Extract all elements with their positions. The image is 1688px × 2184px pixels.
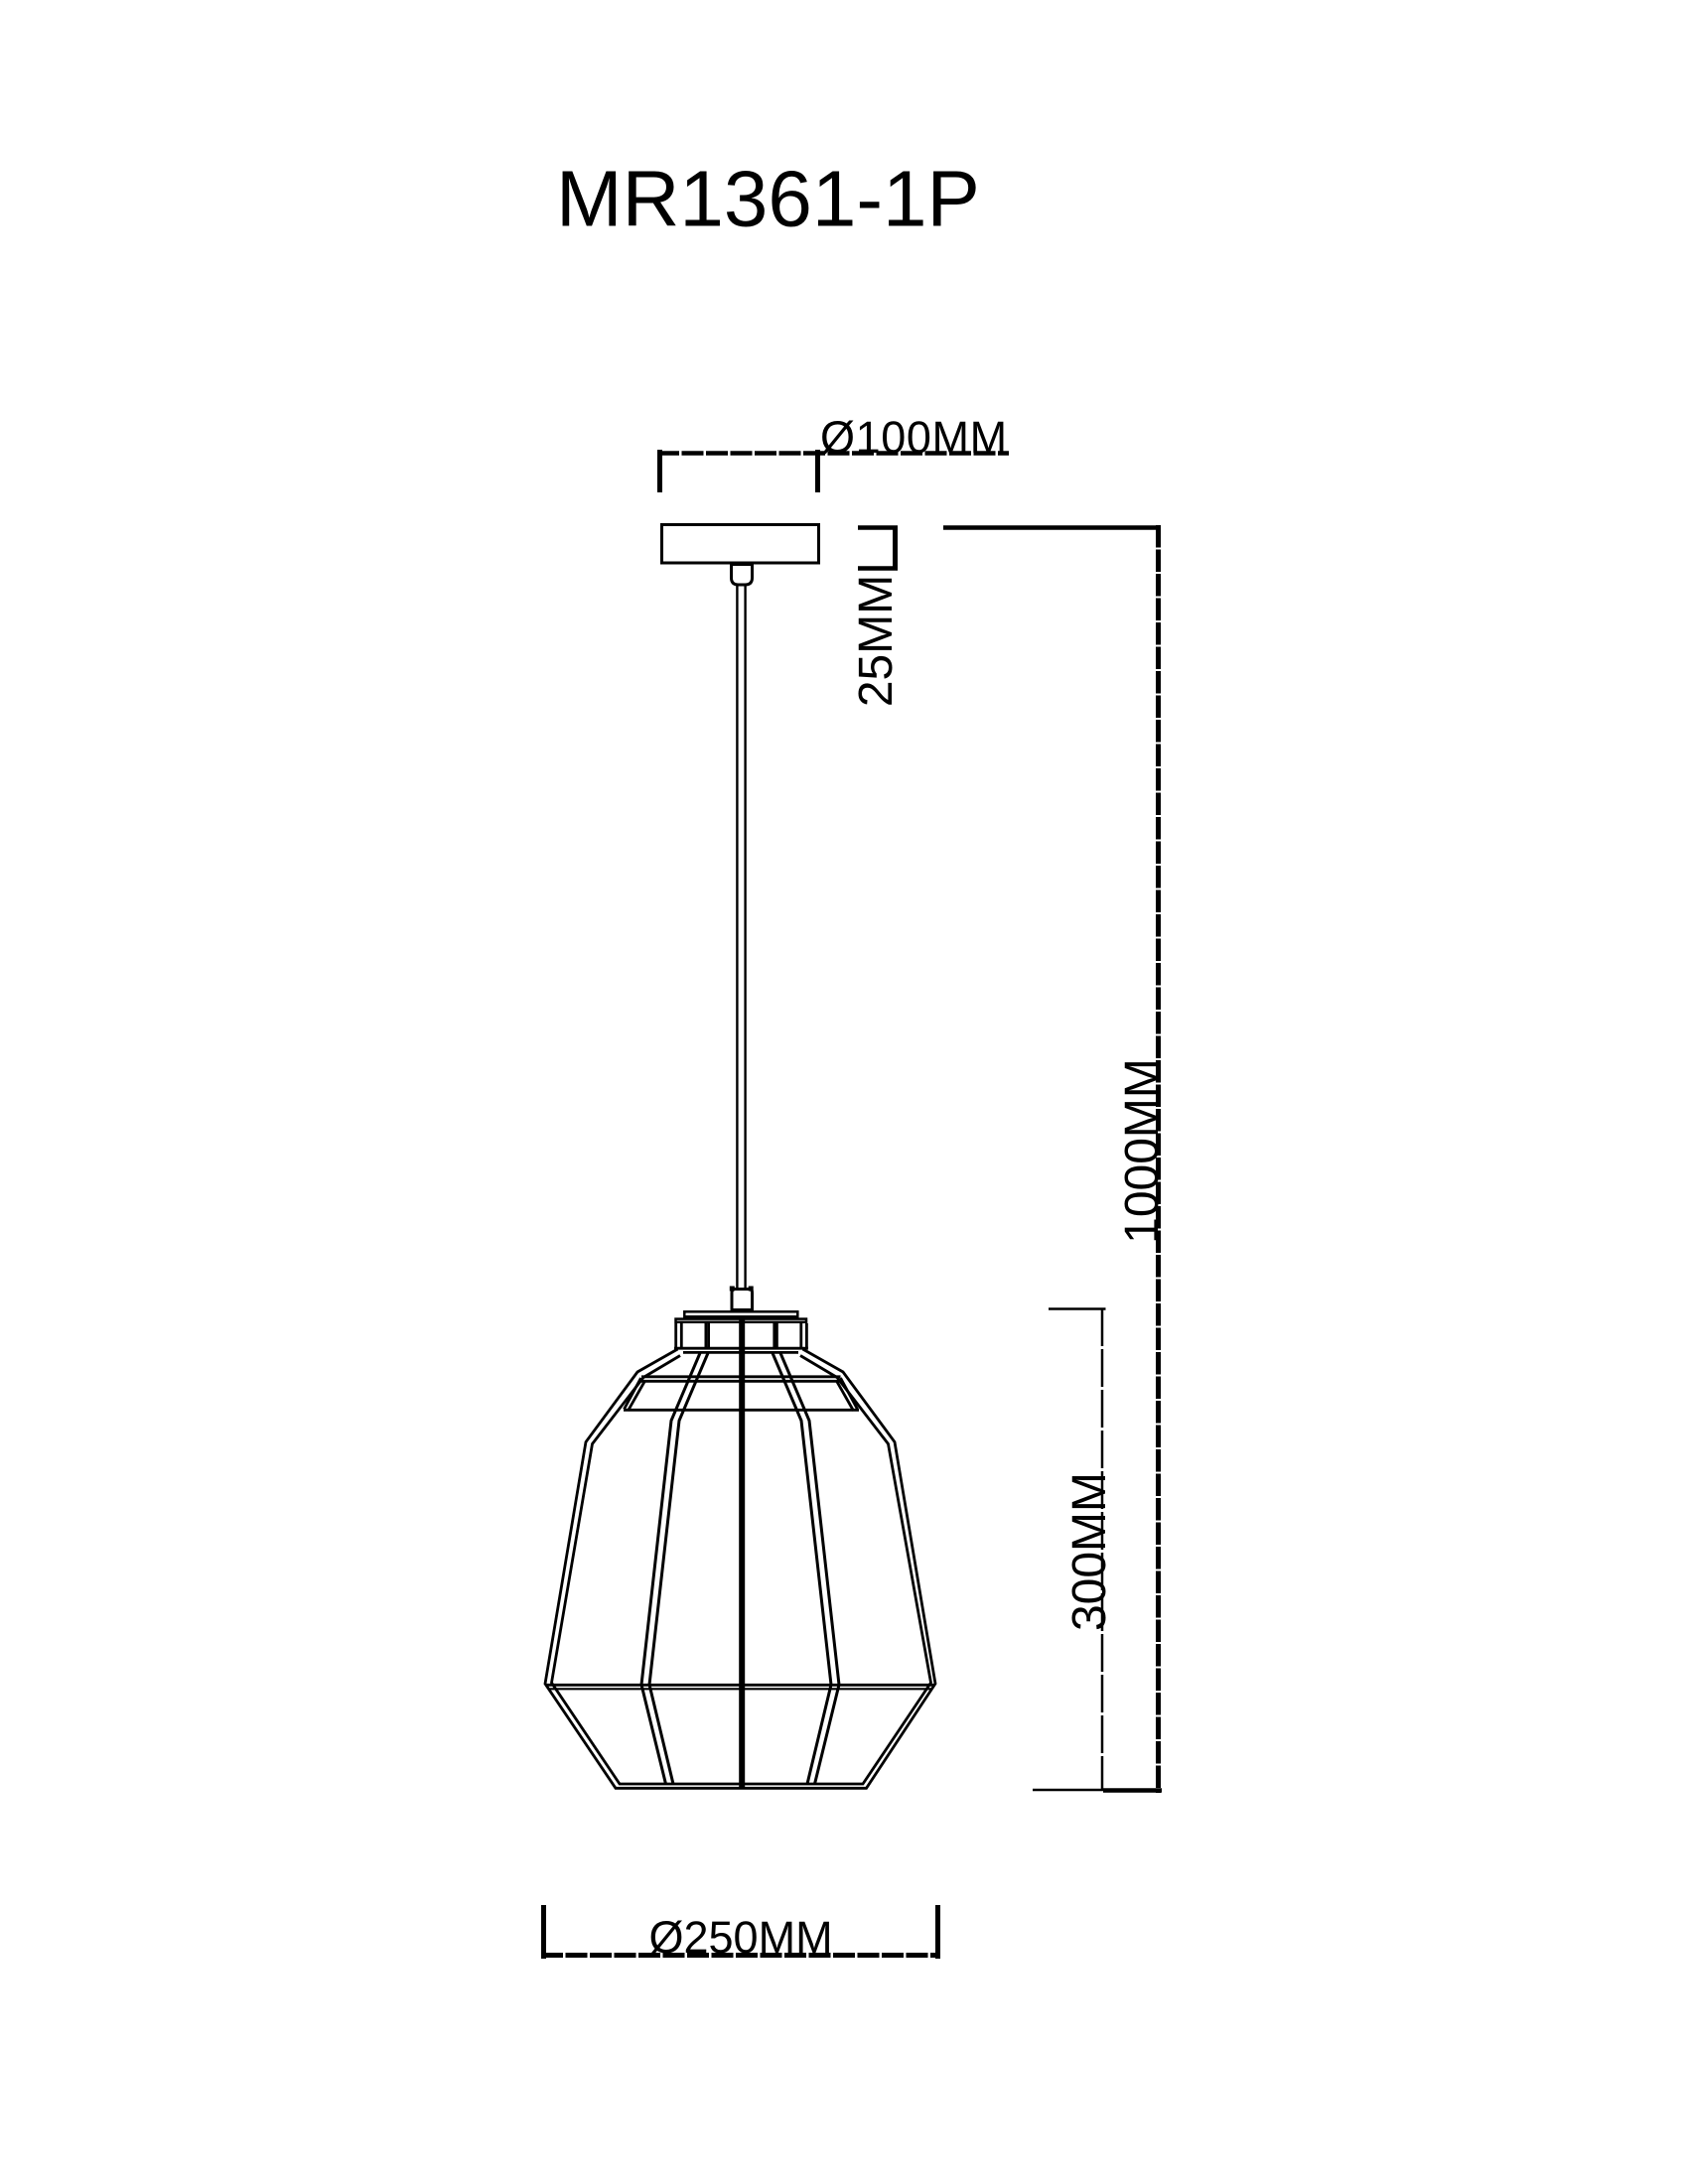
svg-text:Ø250MM: Ø250MM bbox=[649, 1912, 833, 1963]
svg-text:300MM: 300MM bbox=[1063, 1472, 1116, 1631]
svg-text:MR1361-1P: MR1361-1P bbox=[556, 154, 980, 242]
svg-text:25MM: 25MM bbox=[850, 575, 903, 707]
svg-text:Ø100MM: Ø100MM bbox=[820, 412, 1008, 463]
svg-text:1000MM: 1000MM bbox=[1116, 1058, 1169, 1244]
